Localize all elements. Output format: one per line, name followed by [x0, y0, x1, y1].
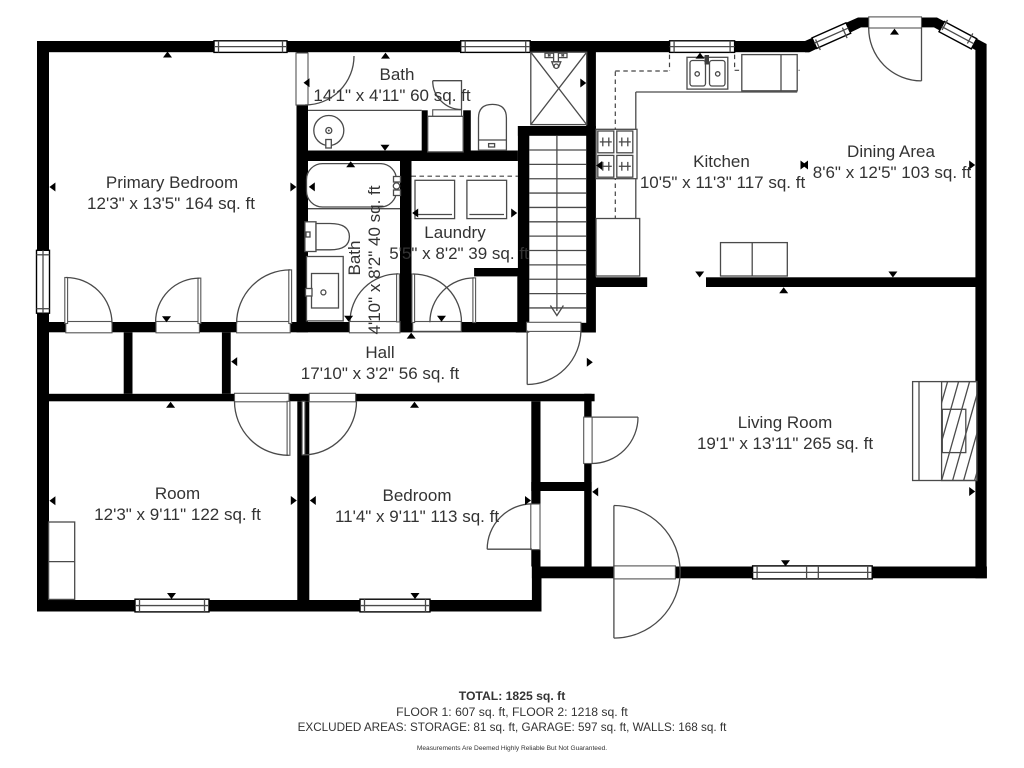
svg-text:Bedroom: Bedroom [383, 486, 452, 505]
svg-text:Dining Area: Dining Area [847, 142, 935, 161]
svg-text:12'3" x 13'5" 164 sq. ft: 12'3" x 13'5" 164 sq. ft [87, 194, 255, 213]
svg-text:Measurements Are Deemed Highly: Measurements Are Deemed Highly Reliable … [417, 745, 607, 752]
svg-text:Hall: Hall [365, 343, 394, 362]
svg-text:Primary Bedroom: Primary Bedroom [106, 173, 238, 192]
svg-text:EXCLUDED AREAS: STORAGE: 81 sq: EXCLUDED AREAS: STORAGE: 81 sq. ft, GARA… [298, 721, 727, 734]
svg-text:4'10" x 8'2" 40 sq. ft: 4'10" x 8'2" 40 sq. ft [365, 185, 384, 334]
svg-text:14'1" x 4'11" 60 sq. ft: 14'1" x 4'11" 60 sq. ft [313, 86, 470, 105]
svg-text:19'1" x 13'11" 265 sq. ft: 19'1" x 13'11" 265 sq. ft [697, 434, 873, 453]
svg-text:10'5" x 11'3" 117 sq. ft: 10'5" x 11'3" 117 sq. ft [640, 173, 806, 192]
svg-text:Laundry: Laundry [424, 223, 486, 242]
svg-text:5'5" x 8'2" 39 sq. ft: 5'5" x 8'2" 39 sq. ft [389, 244, 529, 263]
svg-text:11'4" x 9'11" 113 sq. ft: 11'4" x 9'11" 113 sq. ft [335, 507, 499, 526]
svg-text:Kitchen: Kitchen [693, 152, 750, 171]
svg-text:Bath: Bath [380, 65, 415, 84]
svg-text:Bath: Bath [345, 241, 364, 276]
svg-text:FLOOR 1: 607 sq. ft, FLOOR 2:: FLOOR 1: 607 sq. ft, FLOOR 2: 1218 sq. f… [396, 705, 628, 719]
svg-text:Living Room: Living Room [738, 413, 833, 432]
svg-text:17'10" x 3'2" 56 sq. ft: 17'10" x 3'2" 56 sq. ft [301, 364, 460, 383]
svg-text:TOTAL: 1825 sq. ft: TOTAL: 1825 sq. ft [459, 689, 566, 703]
svg-text:12'3" x 9'11" 122 sq. ft: 12'3" x 9'11" 122 sq. ft [94, 505, 261, 524]
svg-text:Room: Room [155, 484, 200, 503]
svg-text:8'6" x 12'5" 103 sq. ft: 8'6" x 12'5" 103 sq. ft [813, 163, 972, 182]
